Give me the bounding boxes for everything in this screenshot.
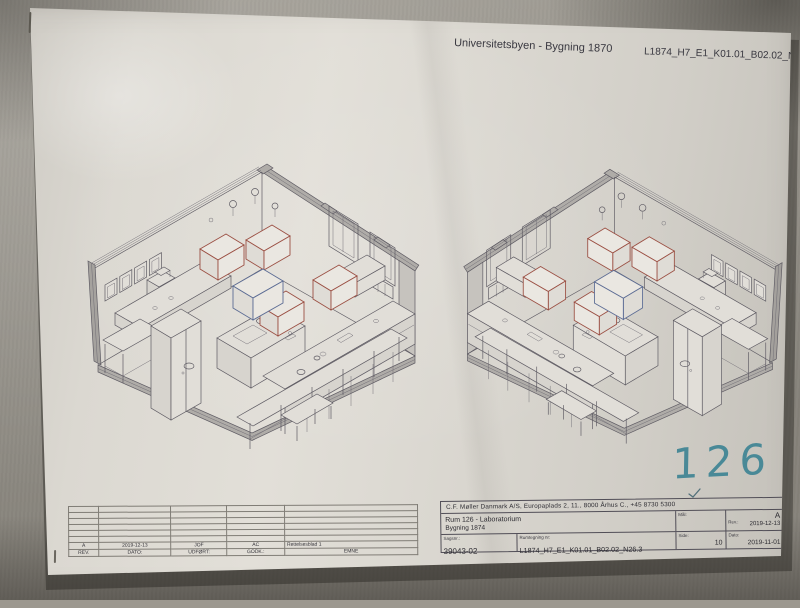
wall-band-top-right <box>257 164 419 271</box>
ceiling-fixtures <box>209 189 278 223</box>
scale-label: Mål: <box>676 511 724 518</box>
page-value: 10 <box>715 540 723 547</box>
counter-left-wall <box>115 261 231 340</box>
company-line: C.F. Møller Danmark A/S, Europaplads 2, … <box>441 498 788 514</box>
handwritten-room-number: 126 <box>672 438 774 485</box>
drawing-number-label: Rumtegning nr: <box>517 532 675 540</box>
wall-cupboards <box>105 253 161 301</box>
base-cabinet-run <box>263 301 415 432</box>
drawing-code-header: L1874_H7_E1_K01.01_B02.02_N26.3 <box>644 46 800 62</box>
drawing-number-value: L1874_H7_E1_K01.01_B02.02_N26.3 <box>518 545 643 556</box>
window-frames <box>329 206 395 299</box>
date-value: 2019-11-01 <box>748 539 781 546</box>
rev-value: A <box>775 511 780 520</box>
island-bench-sink <box>217 307 305 388</box>
tall-wardrobe-cabinets <box>151 309 201 420</box>
bench-right-wall <box>337 255 385 297</box>
staple-bottom-left <box>54 550 56 563</box>
project-title: Universitetsbyen - Bygning 1870 <box>454 37 613 55</box>
date-label: Dato: <box>726 531 782 538</box>
long-open-bench <box>237 329 407 449</box>
wall-lines-top-left <box>92 167 262 268</box>
rev-date: 2019-12-13 <box>750 521 781 527</box>
small-bench-front <box>281 394 333 441</box>
floor-slab-edge <box>98 356 415 441</box>
title-block: C.F. Møller Danmark A/S, Europaplads 2, … <box>440 497 785 553</box>
pinned-drawing-sheet: Universitetsbyen - Bygning 1870 L1874_H7… <box>0 0 800 600</box>
tall-cabinet-small <box>147 267 175 331</box>
rev-label: Rev.: <box>726 518 738 524</box>
revision-header-row: REV. DATO: UDFØRT: GODK.: EMNE <box>69 548 418 557</box>
revision-row: A 2019-12-13 JOF AC Rettelsesblad 1 <box>69 541 418 550</box>
revision-table: A 2019-12-13 JOF AC Rettelsesblad 1 REV.… <box>68 504 418 557</box>
stools <box>184 352 326 375</box>
fume-canopy-blue <box>233 269 283 320</box>
wall-face-right <box>399 261 415 357</box>
pen-tick-mark <box>687 487 703 499</box>
case-number-label: Sagsnr.: <box>441 534 516 541</box>
isometric-room-view-right <box>453 173 785 438</box>
case-number-value: 39043-02 <box>442 547 478 556</box>
building-title: Bygning 1874 <box>441 522 675 533</box>
isometric-room-view-left <box>85 168 430 443</box>
page-label: Side: <box>676 532 724 539</box>
fume-canopies-red <box>200 225 357 336</box>
room-title: Rum 126 - Laboratorium <box>441 511 675 525</box>
desk-bottom-left <box>103 319 160 383</box>
wall-cut-face-left <box>88 261 101 365</box>
